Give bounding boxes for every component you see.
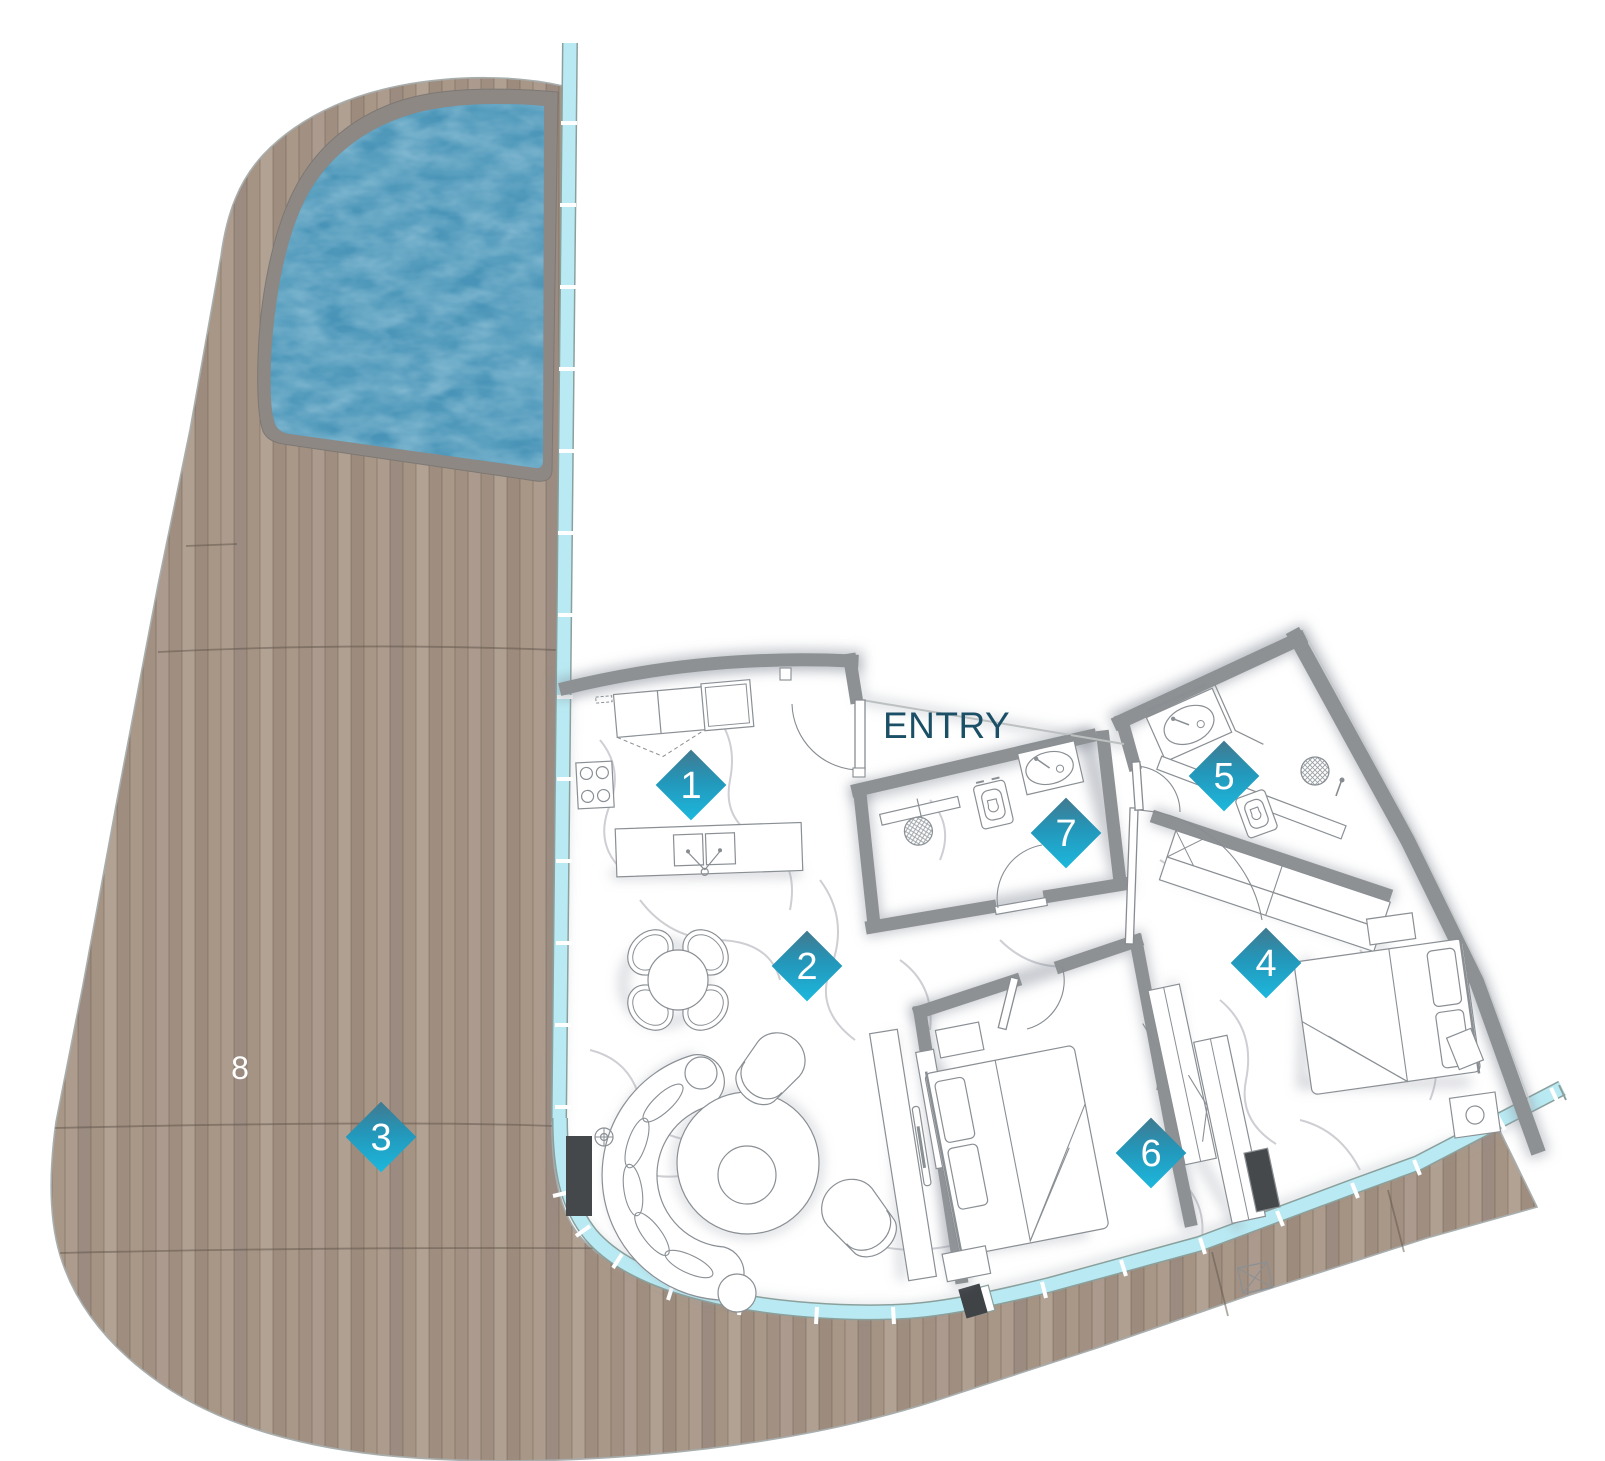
svg-text:2: 2 <box>796 946 817 988</box>
svg-text:6: 6 <box>1140 1133 1161 1175</box>
svg-text:7: 7 <box>1055 813 1076 855</box>
svg-text:3: 3 <box>370 1117 391 1159</box>
svg-text:4: 4 <box>1255 943 1276 985</box>
svg-text:ENTRY: ENTRY <box>883 705 1010 746</box>
svg-text:5: 5 <box>1213 756 1234 798</box>
svg-text:1: 1 <box>680 765 701 807</box>
svg-text:8: 8 <box>231 1050 249 1086</box>
